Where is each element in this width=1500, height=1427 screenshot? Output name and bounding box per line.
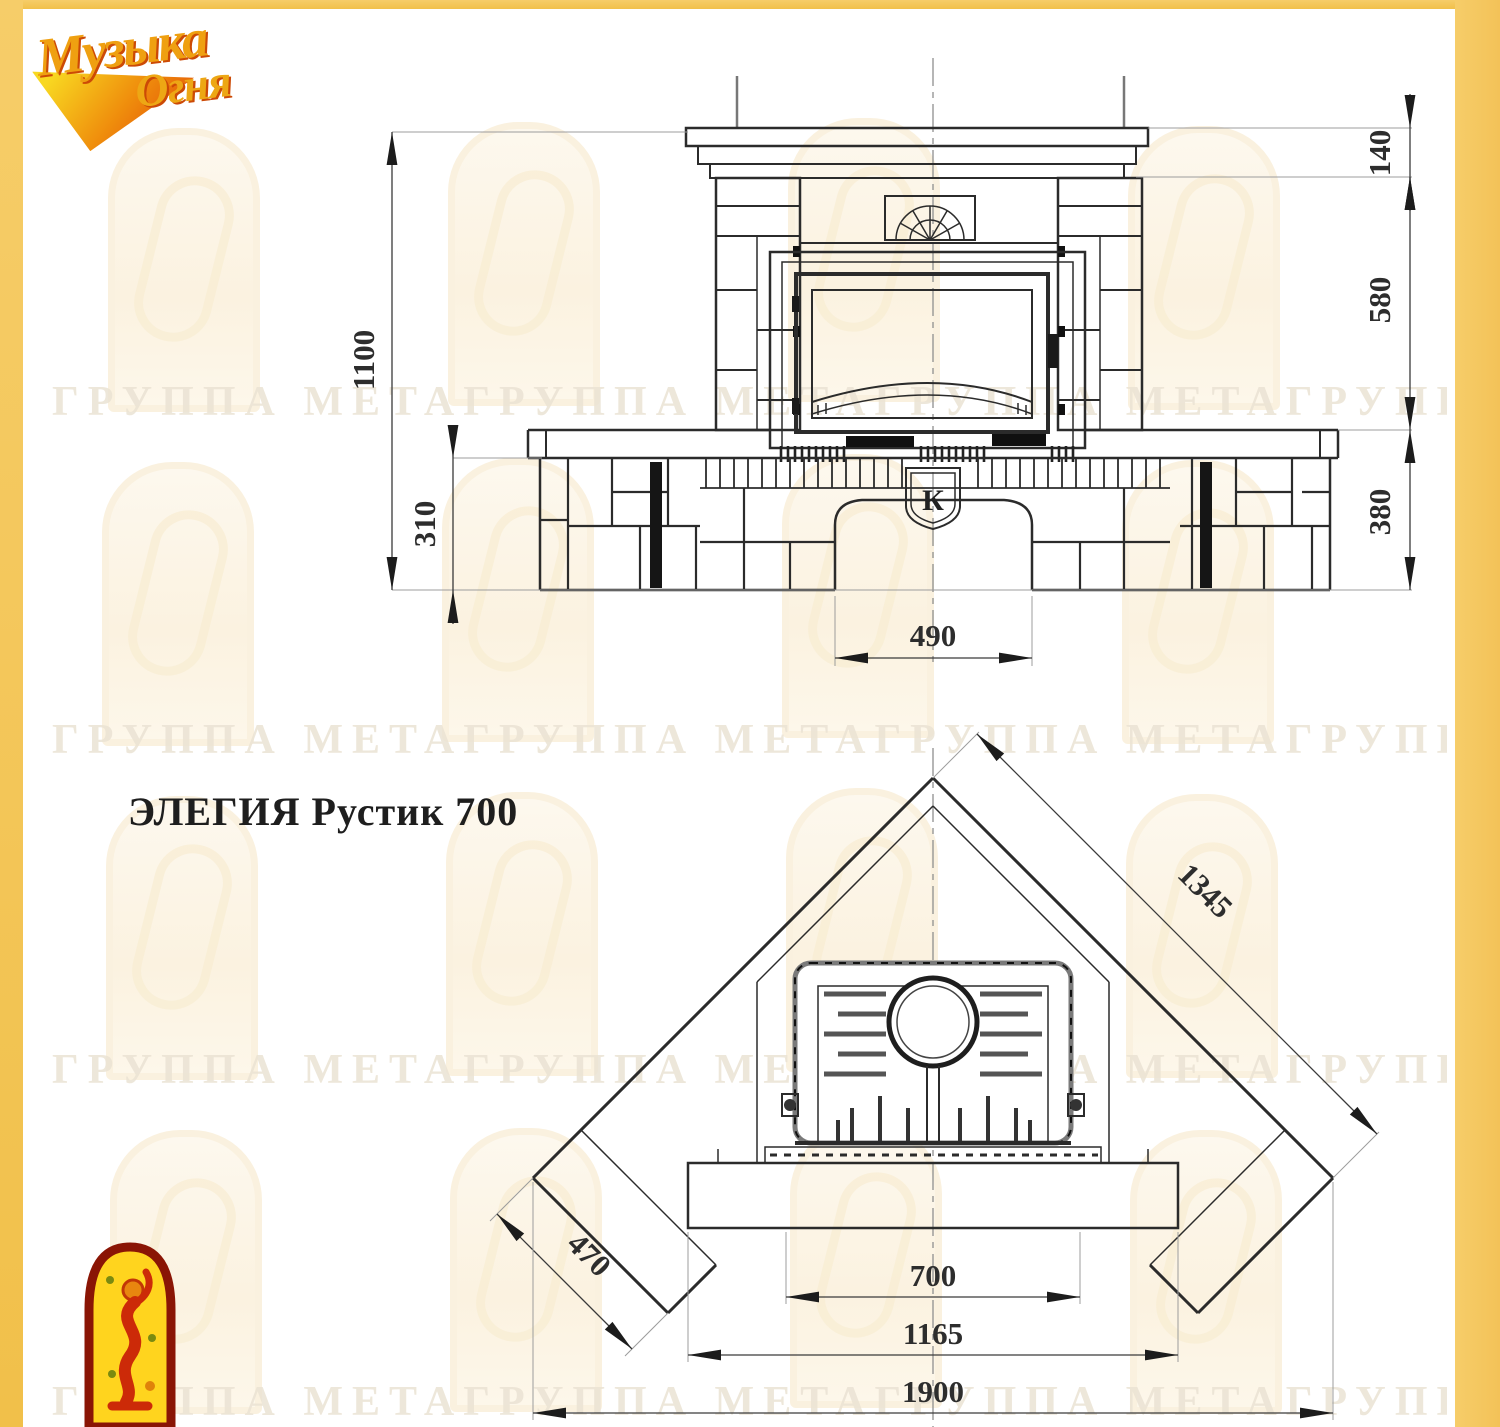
dim-firebox-zone-height: 580 — [1362, 277, 1397, 324]
dim-cornice-height: 140 — [1362, 130, 1397, 177]
dim-total-height: 1100 — [346, 330, 381, 390]
keystone-letter: К — [922, 484, 944, 517]
door-handle — [1048, 334, 1058, 368]
left-wing-stones — [540, 458, 700, 590]
flue-circle — [889, 978, 977, 1066]
front-dimensions: 1100 310 140 580 380 490 — [346, 94, 1412, 666]
cornice — [686, 128, 1148, 178]
dim-bench-height: 310 — [407, 501, 442, 548]
front-view: К — [346, 58, 1412, 666]
fire-dancer-arch-emblem-icon — [82, 1238, 178, 1427]
gold-border-left — [0, 0, 23, 1427]
door-glass — [812, 290, 1032, 418]
dim-opening-width: 700 — [910, 1258, 957, 1293]
page-title: ЭЛЕГИЯ Рустик 700 — [128, 788, 518, 835]
gold-border-right — [1455, 0, 1500, 1427]
drawing-page: ГРУППА МЕТАГРУППА МЕТАГРУППА МЕТАГРУППА … — [0, 0, 1500, 1427]
dim-bench-depth: 470 — [561, 1226, 619, 1284]
dim-side-length: 1345 — [1171, 856, 1240, 925]
dim-total-width: 1900 — [902, 1374, 964, 1409]
frieze-panel — [800, 178, 1058, 243]
fan-ornament-icon — [896, 206, 964, 240]
masonry-base: К — [540, 458, 1330, 590]
fireplace-technical-drawing: К — [0, 0, 1500, 1427]
dim-base-width: 1165 — [903, 1316, 963, 1351]
firebox-insert-plan — [782, 963, 1084, 1143]
right-pilaster — [1058, 178, 1142, 430]
dim-base-height: 380 — [1362, 489, 1397, 536]
firebox — [770, 252, 1085, 462]
dim-arch-width: 490 — [910, 618, 957, 653]
plan-view: 1345 470 700 1165 1900 — [490, 732, 1379, 1427]
brand-logo-text-2: Огня — [132, 54, 233, 118]
left-pilaster — [716, 178, 800, 430]
